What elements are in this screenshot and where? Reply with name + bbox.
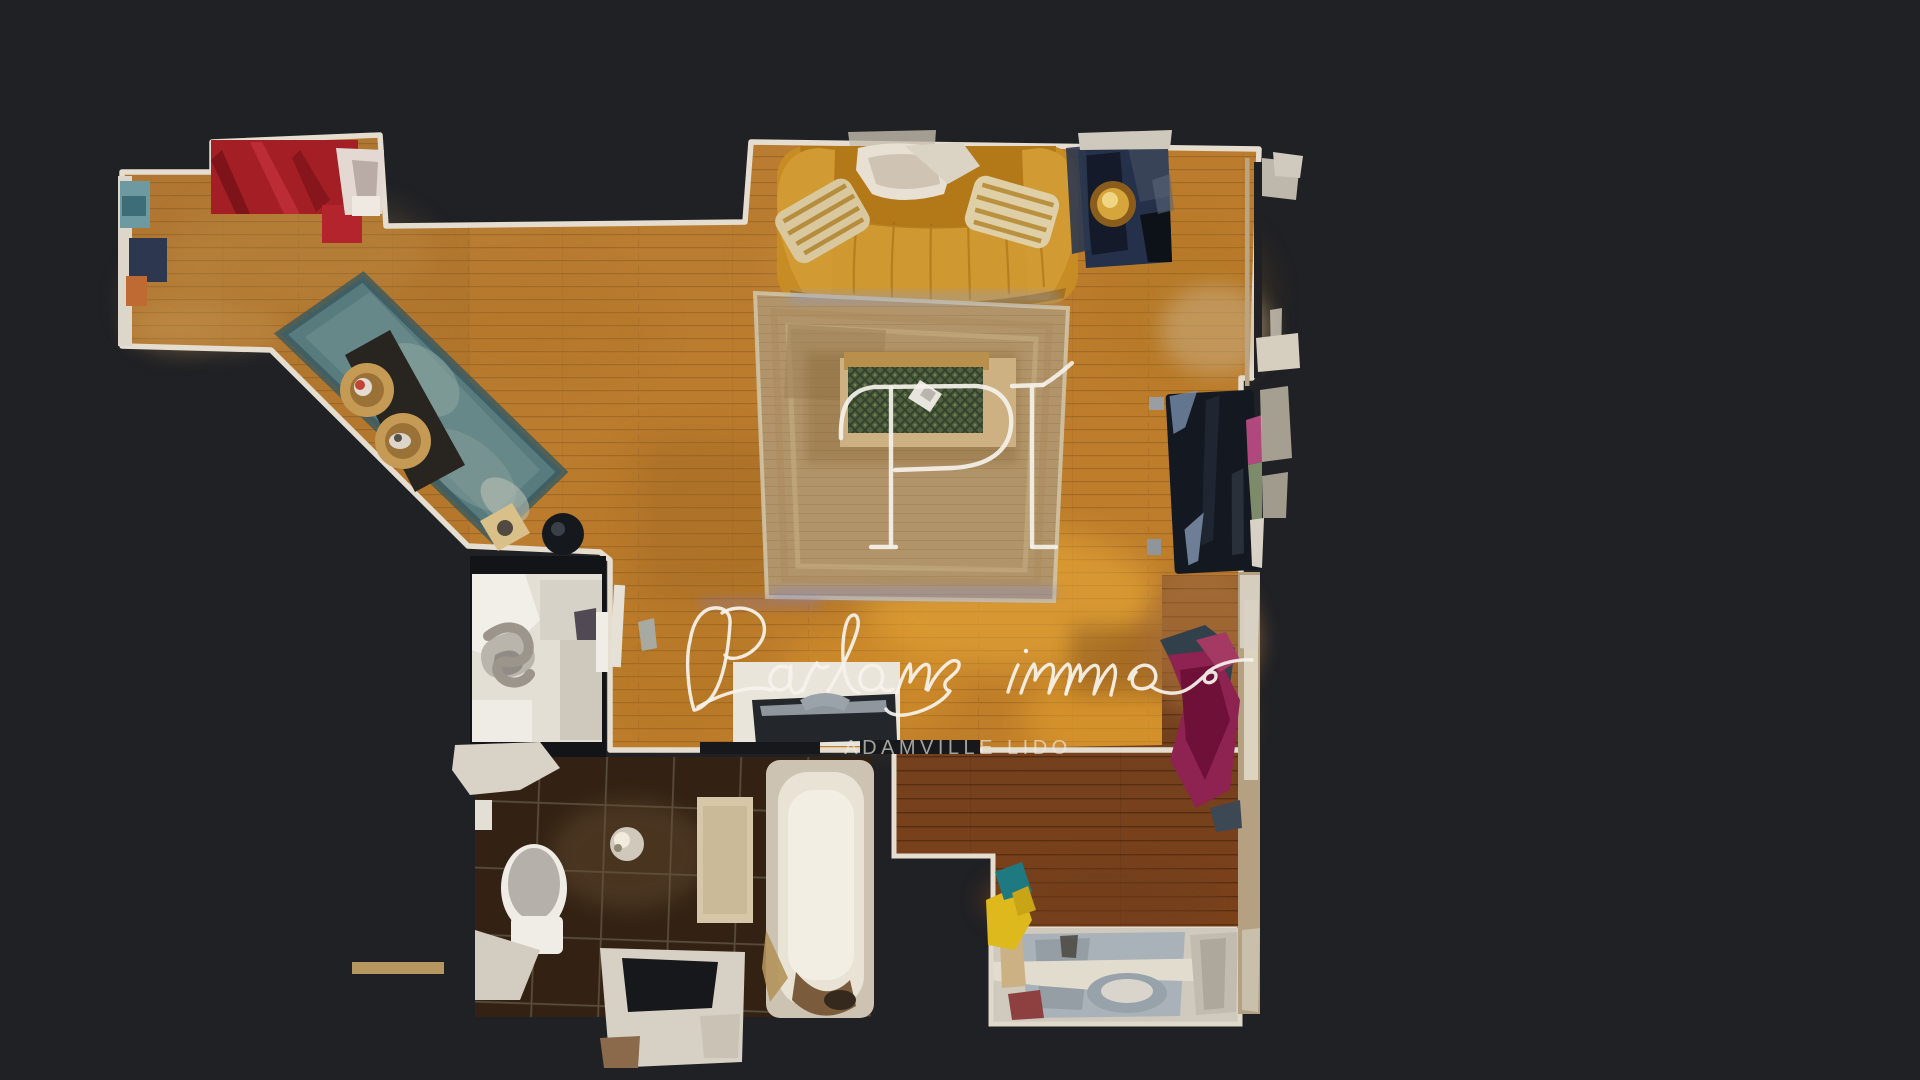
svg-text:ADAMVILLE LIDO: ADAMVILLE LIDO	[844, 737, 1072, 759]
